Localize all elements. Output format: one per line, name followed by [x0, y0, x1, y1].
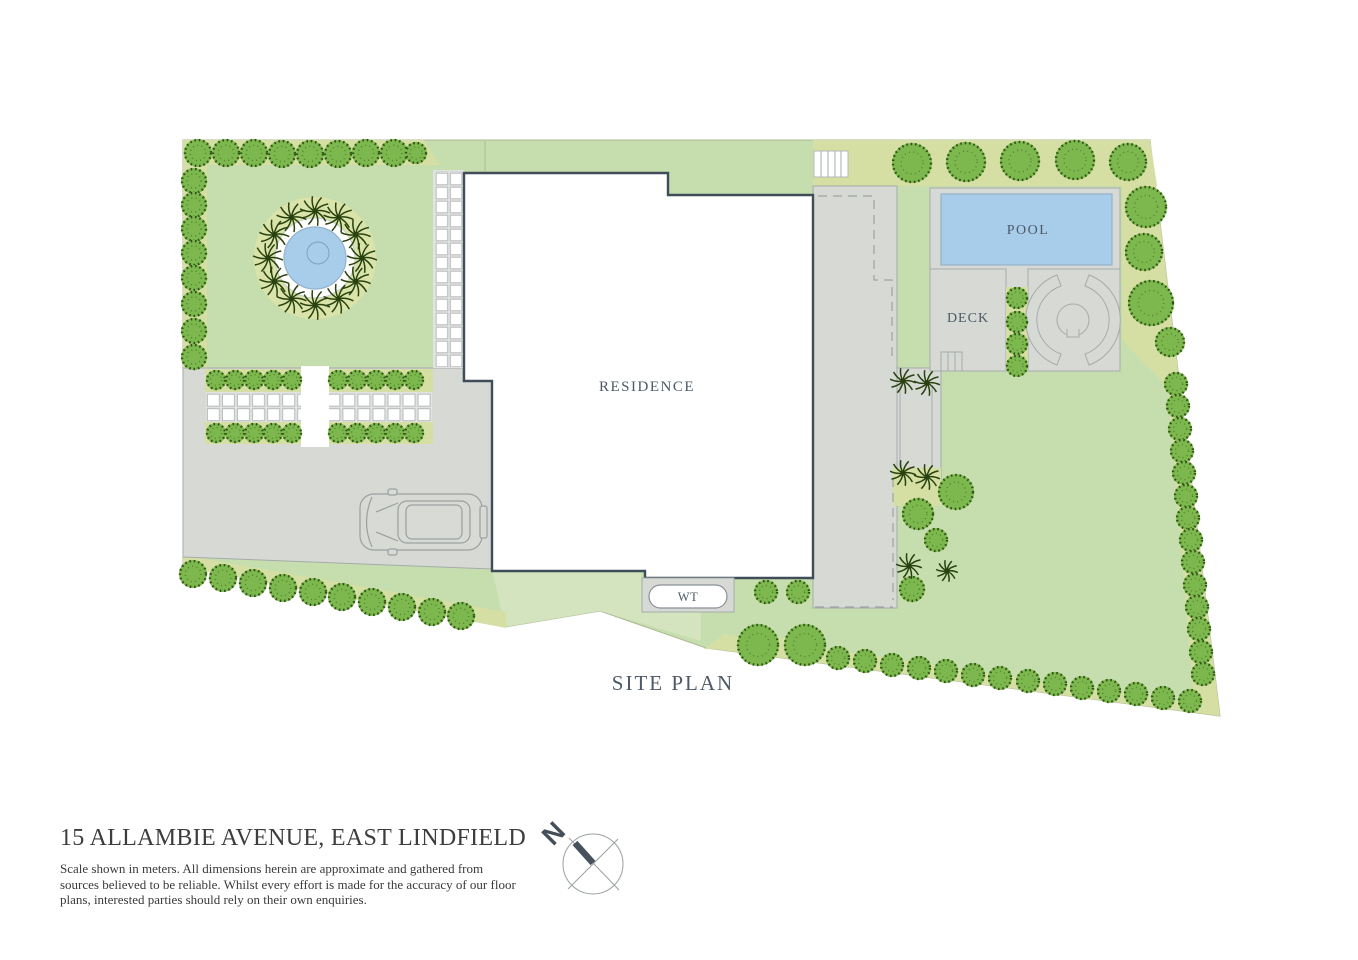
tree [181, 216, 207, 242]
residence-outline [464, 173, 813, 578]
tree [225, 423, 245, 443]
tree [385, 370, 405, 390]
tree [902, 498, 934, 530]
tree [244, 423, 264, 443]
tree [1006, 333, 1028, 355]
north-compass: N [536, 816, 623, 894]
tree [1006, 355, 1028, 377]
tree [754, 580, 778, 604]
tree [388, 593, 416, 621]
tree [1000, 141, 1040, 181]
pond-water [284, 227, 346, 289]
entry-stairs [814, 151, 848, 177]
tree [181, 192, 207, 218]
site-plan-page: RESIDENCE POOL DECK WT SITE PLAN N 15 AL… [0, 0, 1358, 960]
residence-label: RESIDENCE [599, 379, 695, 395]
garden-bed [897, 368, 941, 480]
tree [1181, 550, 1205, 574]
tree [405, 142, 427, 164]
tree [181, 265, 207, 291]
car [360, 489, 487, 555]
north-label: N [536, 816, 571, 851]
tree [212, 139, 240, 167]
tree [826, 646, 850, 670]
tree [1043, 672, 1067, 696]
tree [737, 624, 779, 666]
walkway-gap [301, 366, 329, 447]
tree [1166, 394, 1190, 418]
tree [225, 370, 245, 390]
tree [268, 140, 296, 168]
tree [385, 423, 405, 443]
disclaimer-line: sources believed to be reliable. Whilst … [60, 877, 526, 893]
tree [1155, 327, 1185, 357]
tree [899, 576, 925, 602]
tree [404, 423, 424, 443]
tree [206, 423, 226, 443]
tree [328, 423, 348, 443]
tree [786, 580, 810, 604]
tree [1187, 617, 1211, 641]
tree [418, 598, 446, 626]
site-plan-caption: SITE PLAN [612, 671, 734, 695]
tree [181, 344, 207, 370]
tree [328, 370, 348, 390]
stepping-stones [433, 170, 464, 368]
disclaimer: Scale shown in meters. All dimensions he… [60, 861, 526, 908]
tree [1109, 143, 1147, 181]
disclaimer-line: plans, interested parties should rely on… [60, 892, 526, 908]
deck-label: DECK [947, 311, 989, 326]
tree [1172, 461, 1196, 485]
tree [328, 583, 356, 611]
car-mirror [388, 489, 397, 495]
tree [853, 649, 877, 673]
tree [938, 474, 974, 510]
tree [784, 624, 826, 666]
footer-text-block: 15 ALLAMBIE AVENUE, EAST LINDFIELD Scale… [60, 825, 526, 908]
tree [1124, 682, 1148, 706]
tree [1191, 662, 1215, 686]
tree [1016, 669, 1040, 693]
tree [892, 143, 932, 183]
tree [1006, 287, 1028, 309]
tree [1168, 417, 1192, 441]
tree [1183, 573, 1207, 597]
compass-needle [575, 843, 593, 863]
tree [1151, 686, 1175, 710]
tree [358, 588, 386, 616]
pool-label: POOL [1007, 223, 1050, 238]
tree [1189, 640, 1213, 664]
tree [1164, 372, 1188, 396]
tree [366, 423, 386, 443]
tree [907, 656, 931, 680]
tree [1179, 528, 1203, 552]
deck-steps [941, 352, 962, 371]
tree [181, 318, 207, 344]
tree [263, 423, 283, 443]
tree [347, 423, 367, 443]
tree [352, 139, 380, 167]
tree [282, 423, 302, 443]
tree [1185, 595, 1209, 619]
water-tank-label: WT [678, 590, 698, 604]
disclaimer-line: Scale shown in meters. All dimensions he… [60, 861, 526, 877]
tree [181, 240, 207, 266]
car-mirror [388, 549, 397, 555]
tree [988, 666, 1012, 690]
tree [880, 653, 904, 677]
tree [1174, 484, 1198, 508]
tree [1176, 506, 1200, 530]
tree [184, 139, 212, 167]
tree [181, 291, 207, 317]
tree [239, 569, 267, 597]
tree [1170, 439, 1194, 463]
tree [282, 370, 302, 390]
tree [1070, 676, 1094, 700]
tree [209, 564, 237, 592]
tree [1055, 140, 1095, 180]
tree [244, 370, 264, 390]
tree [1097, 679, 1121, 703]
tree [324, 140, 352, 168]
tree [1128, 280, 1174, 326]
tree [206, 370, 226, 390]
tree [1006, 311, 1028, 333]
tree [179, 560, 207, 588]
tree [240, 139, 268, 167]
tree [447, 602, 475, 630]
tree [181, 168, 207, 194]
tree [380, 139, 408, 167]
tree [934, 659, 958, 683]
tree [263, 370, 283, 390]
tree [1178, 689, 1202, 713]
tree [269, 574, 297, 602]
tree [404, 370, 424, 390]
tree [296, 140, 324, 168]
tree [347, 370, 367, 390]
tree [946, 142, 986, 182]
tree [961, 663, 985, 687]
tree [924, 528, 948, 552]
tree [1125, 186, 1167, 228]
tree [299, 578, 327, 606]
tree [366, 370, 386, 390]
tree [1125, 233, 1163, 271]
site-plan-drawing: RESIDENCE POOL DECK WT SITE PLAN N [0, 0, 1358, 960]
page-title: 15 ALLAMBIE AVENUE, EAST LINDFIELD [60, 825, 526, 852]
